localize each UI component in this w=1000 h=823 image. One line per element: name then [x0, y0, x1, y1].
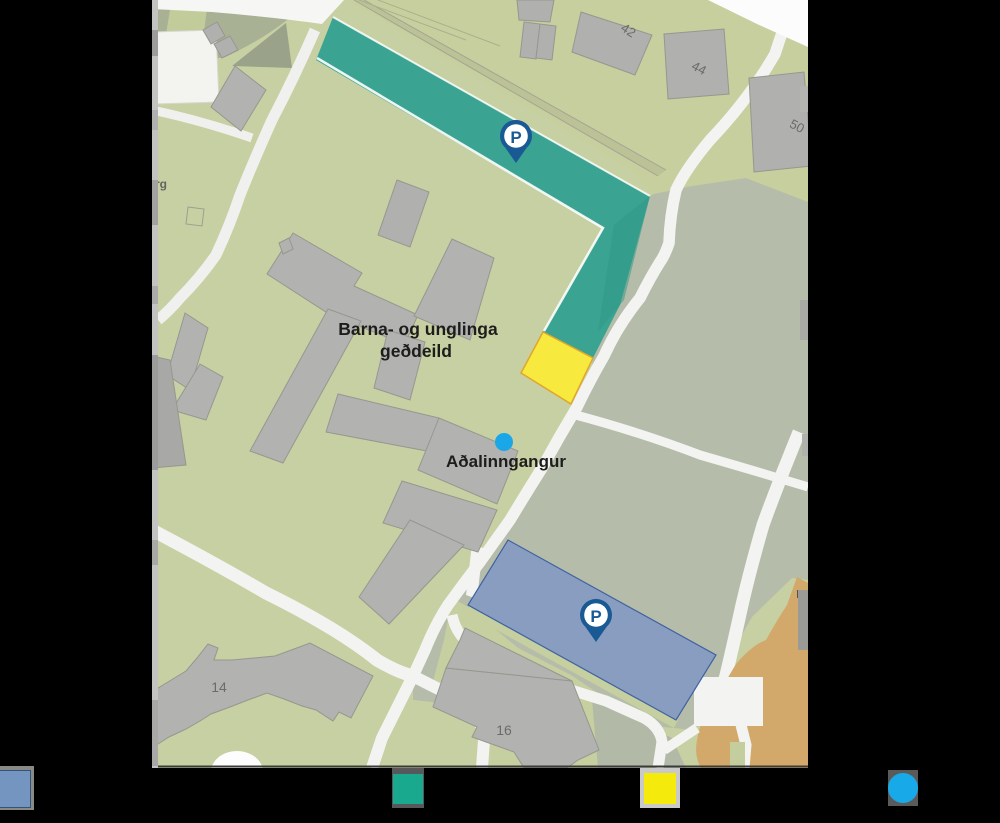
- svg-text:P: P: [590, 607, 601, 626]
- svg-text:P: P: [510, 128, 521, 147]
- svg-text:Aðalinngangur: Aðalinngangur: [446, 452, 566, 471]
- svg-text:geðdeild: geðdeild: [380, 341, 452, 361]
- svg-text:16: 16: [496, 722, 512, 738]
- svg-text:14: 14: [211, 679, 227, 695]
- svg-text:Barna- og unglinga: Barna- og unglinga: [338, 319, 498, 339]
